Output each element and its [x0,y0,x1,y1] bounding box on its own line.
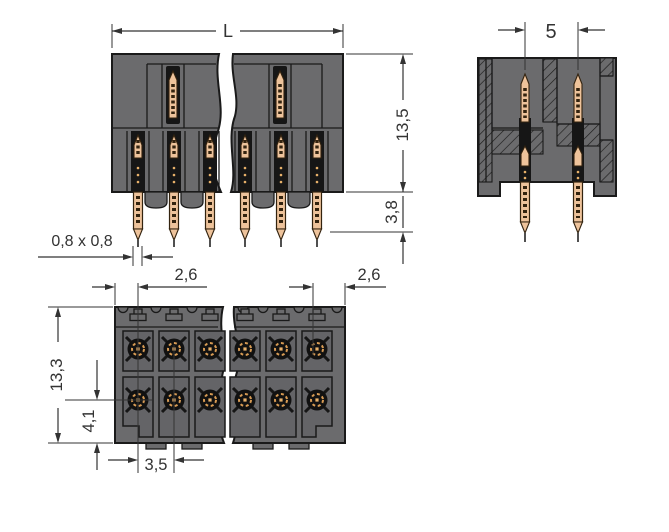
dim-pin-pitch: 3,5 [108,456,204,474]
section-view: 5 [478,21,616,242]
upper-pin [574,74,582,122]
dim-edge-to-first-pin: 2,6 [92,266,207,305]
dim-housing-depth-label: 13,3 [47,358,66,391]
dim-housing-height: 13,5 [346,54,413,192]
solder-pin [203,131,217,247]
dim-pin-cross-section: 0,8 x 0,8 [38,233,173,266]
dim-overall-width-label: L [223,21,233,41]
dim-pin-pitch-label: 3,5 [145,456,168,474]
dim-last-pin-to-edge-label: 2,6 [358,266,381,284]
solder-pin [131,131,145,247]
upper-pin [166,66,180,124]
dim-last-pin-to-edge: 2,6 [289,266,386,305]
upper-pin [521,74,529,122]
connector-dimension-drawing: L 13,5 3,8 0,8 x 0,8 [0,0,669,532]
dim-row-pitch-label: 5 [545,21,556,43]
dim-housing-height-label: 13,5 [393,108,412,141]
dim-pin-tip-offset: 3,8 [330,196,413,264]
solder-pin [238,131,252,247]
technical-drawing-page: L 13,5 3,8 0,8 x 0,8 [0,0,669,532]
solder-pin [167,131,181,247]
dim-row-to-edge-label: 4,1 [80,410,98,433]
solder-pin [310,131,324,247]
dim-row-to-edge: 4,1 [80,360,100,470]
dim-edge-to-first-pin-label: 2,6 [175,266,198,284]
solder-pin [574,146,583,242]
bottom-view: 2,6 2,6 13,3 4,1 3,5 [47,266,386,474]
solder-pin [274,131,288,247]
solder-pin [521,146,530,242]
dim-pin-cross-section-label: 0,8 x 0,8 [51,233,112,250]
dim-pin-tip-offset-label: 3,8 [382,200,401,224]
dim-overall-width: L [112,21,343,48]
front-view: L 13,5 3,8 0,8 x 0,8 [38,21,413,266]
upper-pin [273,66,287,124]
